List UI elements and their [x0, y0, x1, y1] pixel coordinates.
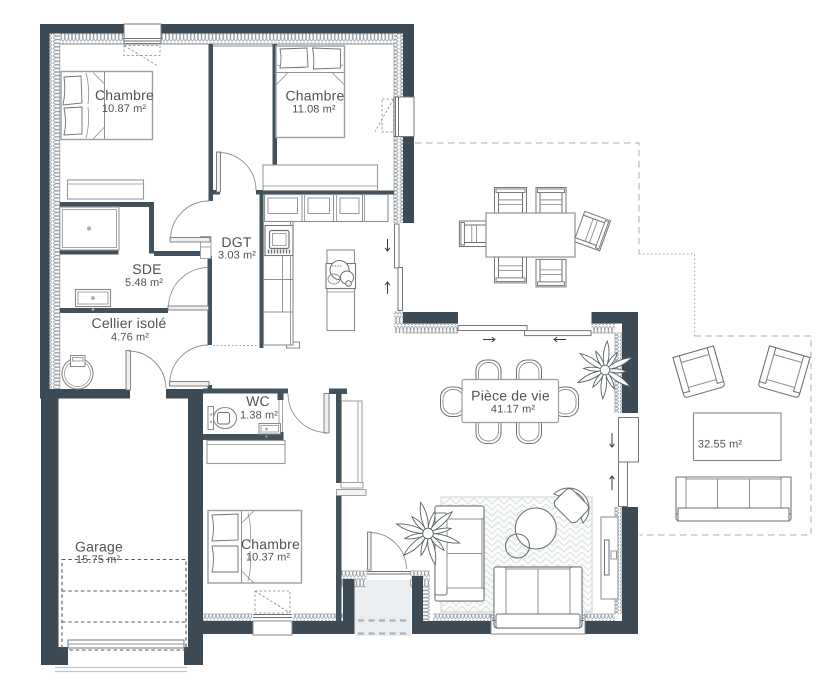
svg-text:WC: WC — [246, 393, 270, 409]
svg-text:10.87 m²: 10.87 m² — [102, 103, 146, 115]
svg-text:1.38 m²: 1.38 m² — [240, 410, 278, 422]
svg-text:Garage: Garage — [75, 539, 123, 555]
svg-text:32.55 m²: 32.55 m² — [698, 439, 742, 451]
svg-text:Chambre: Chambre — [286, 88, 345, 104]
svg-text:4.76 m²: 4.76 m² — [111, 332, 149, 344]
svg-text:41.17 m²: 41.17 m² — [491, 404, 535, 416]
svg-text:10.37 m²: 10.37 m² — [246, 552, 290, 564]
svg-text:11.08 m²: 11.08 m² — [292, 104, 336, 116]
svg-text:DGT: DGT — [221, 234, 251, 250]
svg-text:3.03 m²: 3.03 m² — [218, 250, 256, 262]
svg-text:SDE: SDE — [132, 261, 161, 277]
svg-text:Pièce de vie: Pièce de vie — [471, 388, 550, 404]
svg-text:5.48 m²: 5.48 m² — [125, 277, 163, 289]
svg-text:Cellier isolé: Cellier isolé — [92, 315, 167, 331]
svg-text:Chambre: Chambre — [95, 87, 154, 103]
svg-text:Chambre: Chambre — [241, 536, 300, 552]
